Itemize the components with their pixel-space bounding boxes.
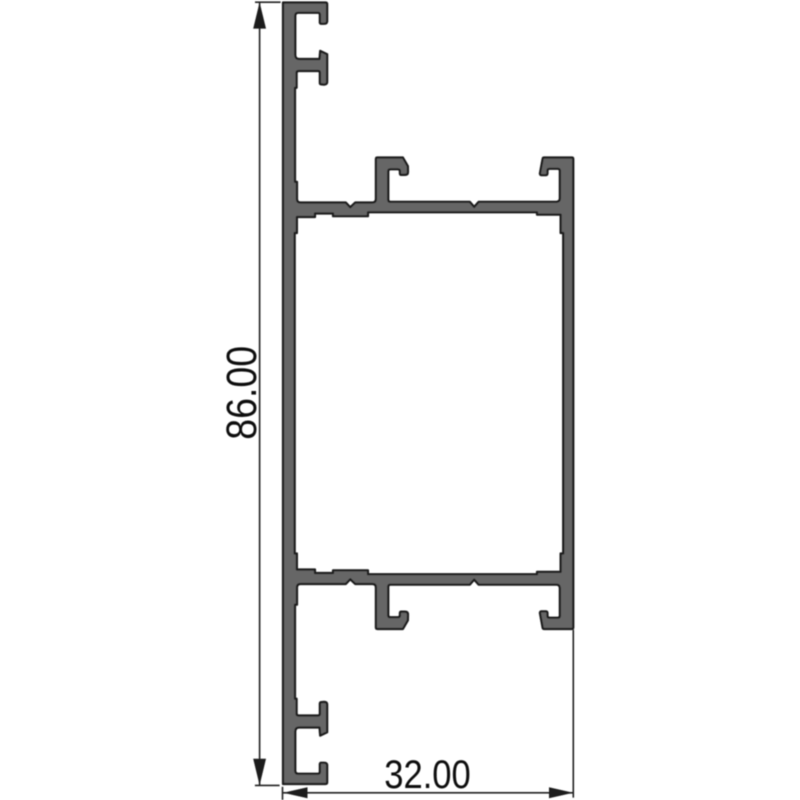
svg-text:32.00: 32.00 bbox=[384, 753, 471, 797]
svg-text:86.00: 86.00 bbox=[219, 346, 266, 440]
